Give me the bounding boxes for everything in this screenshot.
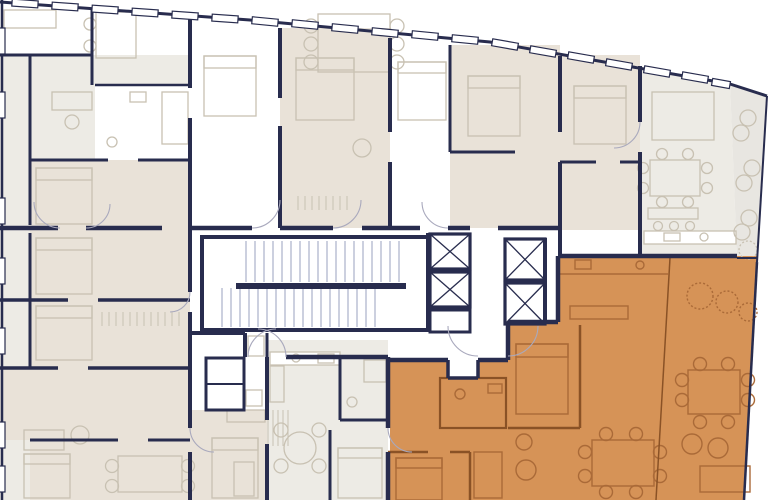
room-bedroom bbox=[30, 230, 190, 300]
window bbox=[0, 258, 5, 284]
room-living bbox=[0, 368, 190, 440]
room-bedroom bbox=[30, 300, 190, 368]
room-unit-beige bbox=[450, 45, 560, 230]
window bbox=[172, 11, 198, 20]
room-unit-bottom-beige bbox=[190, 410, 267, 500]
window bbox=[52, 2, 78, 11]
window bbox=[0, 92, 5, 118]
kitchen-counter bbox=[644, 231, 736, 244]
window bbox=[0, 422, 5, 448]
room-bedroom bbox=[30, 160, 190, 230]
room-bedroom bbox=[30, 440, 190, 500]
window bbox=[12, 0, 38, 8]
window bbox=[0, 28, 5, 54]
window bbox=[0, 328, 5, 354]
room-unit-beige bbox=[560, 55, 640, 230]
window bbox=[212, 14, 238, 23]
floor-plan bbox=[0, 0, 770, 500]
stair-landing-rail bbox=[236, 283, 406, 289]
floor-plan-drawing bbox=[0, 0, 770, 500]
window bbox=[0, 198, 5, 224]
window bbox=[92, 5, 118, 14]
window bbox=[132, 8, 158, 17]
room-bath-cluster bbox=[95, 85, 190, 160]
window bbox=[0, 466, 5, 492]
